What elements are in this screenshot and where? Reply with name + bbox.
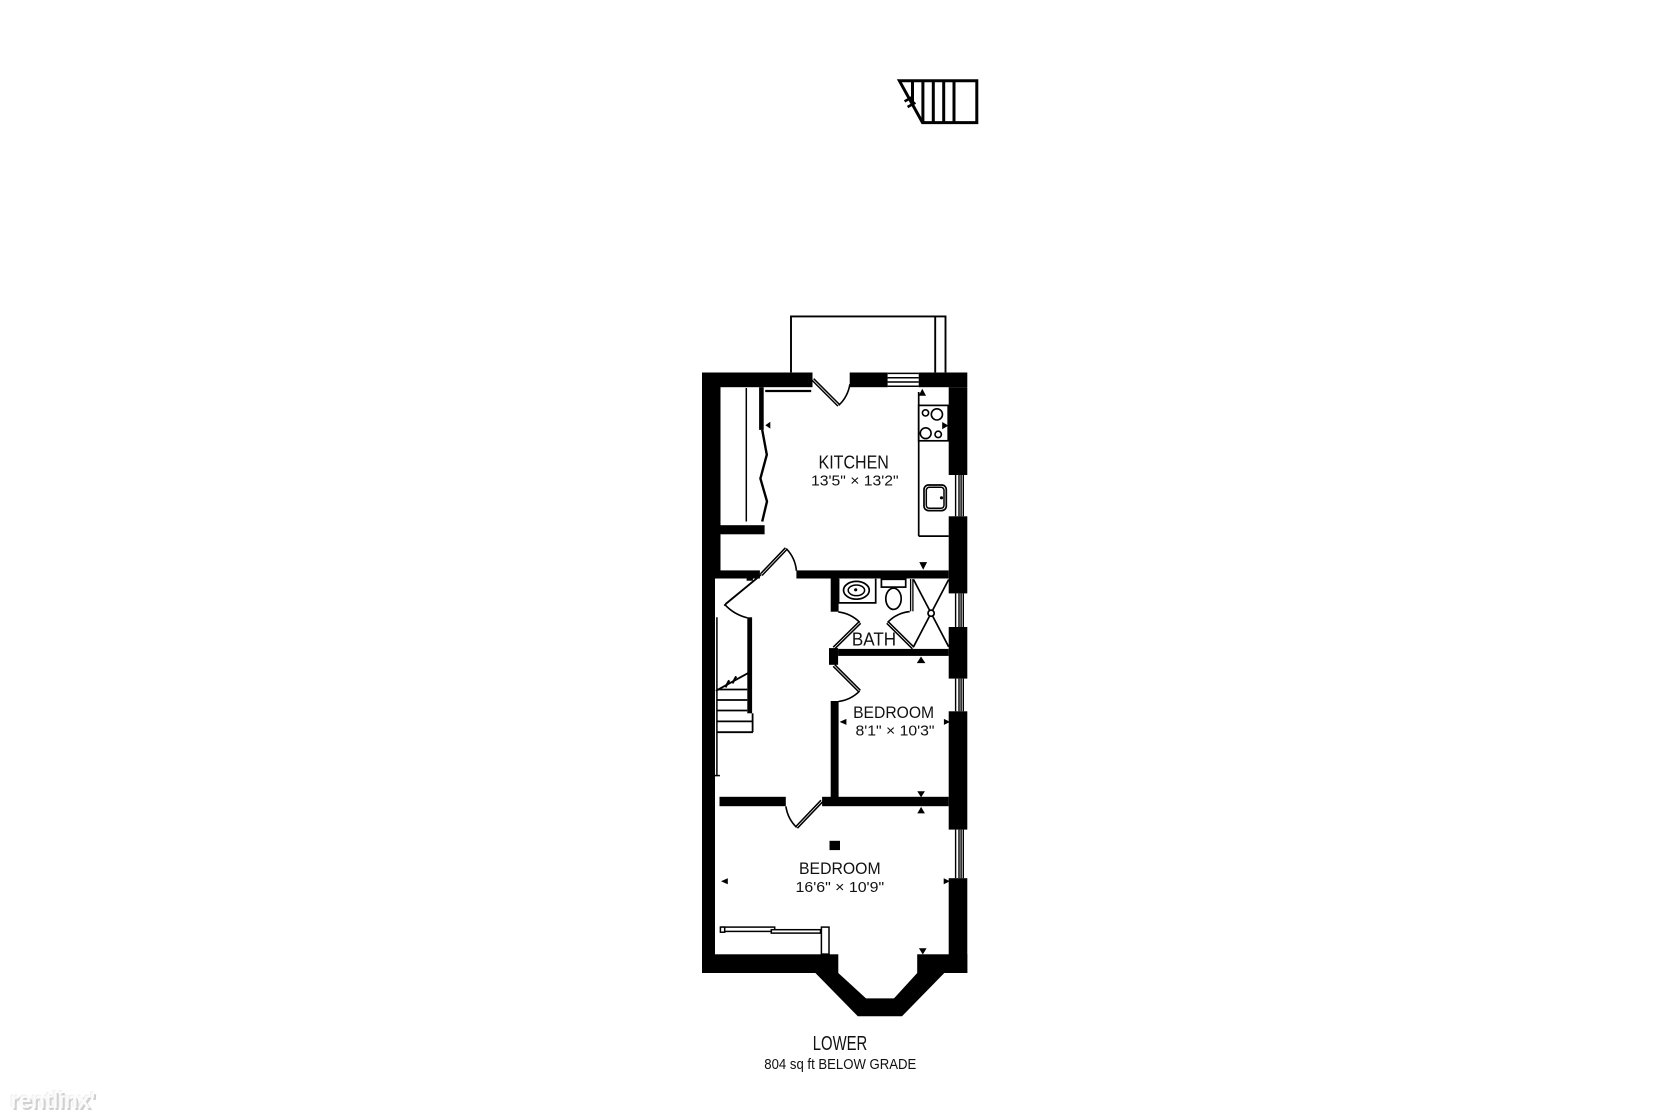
svg-text:13'5" × 13'2": 13'5" × 13'2" bbox=[811, 474, 899, 490]
svg-text:LOWER: LOWER bbox=[813, 1033, 868, 1055]
svg-text:BEDROOM: BEDROOM bbox=[799, 859, 881, 878]
svg-text:KITCHEN: KITCHEN bbox=[819, 453, 889, 473]
svg-text:BEDROOM: BEDROOM bbox=[853, 703, 934, 722]
svg-text:8'1" × 10'3": 8'1" × 10'3" bbox=[856, 724, 935, 740]
svg-text:16'6" × 10'9": 16'6" × 10'9" bbox=[796, 880, 885, 896]
svg-text:804 sq ft BELOW GRADE: 804 sq ft BELOW GRADE bbox=[764, 1056, 916, 1073]
svg-text:BATH: BATH bbox=[852, 629, 896, 649]
